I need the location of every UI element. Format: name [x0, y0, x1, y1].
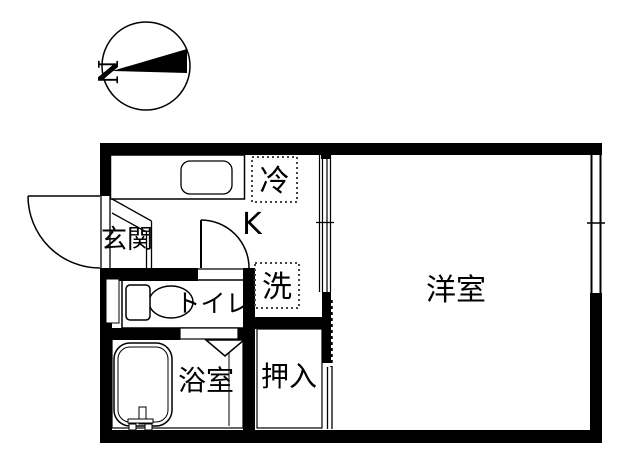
bathtub-icon	[114, 343, 172, 430]
room-label-genkan: 玄関	[101, 225, 153, 255]
label-laundry: 洗	[262, 270, 292, 305]
room-label-bath: 浴室	[178, 364, 234, 397]
compass-north-label: N	[91, 60, 122, 85]
floor-plan: N	[0, 0, 633, 458]
room-label-toilet: トイレ	[175, 289, 250, 318]
bath-door	[180, 328, 238, 339]
room-label-western-room: 洋室	[426, 273, 486, 308]
wall-right-lower	[590, 293, 602, 443]
bath-faucet-knob	[129, 424, 136, 430]
kitchen-sink-icon	[181, 161, 232, 194]
wall-bottom	[100, 430, 602, 443]
room-label-closet: 押入	[261, 360, 317, 393]
wall-toilet-bottom	[112, 328, 180, 340]
bath-faucet-knob	[145, 424, 152, 430]
floor-plan-canvas: N	[0, 0, 633, 458]
wall-closet-top	[250, 317, 322, 329]
toilet-window-slot	[106, 279, 119, 323]
entrance-door-arc-icon	[28, 196, 100, 268]
entrance-door	[28, 196, 110, 268]
wall-toilet-top	[112, 268, 198, 281]
west-room-window	[587, 155, 605, 293]
label-fridge: 冷	[260, 164, 290, 199]
compass: N	[91, 22, 190, 110]
wall-top	[100, 143, 602, 155]
bath-faucet-bar	[128, 419, 153, 423]
wall-closet-east	[322, 292, 331, 363]
kitchen-room-sliding-door	[316, 155, 334, 292]
toilet-tank-icon	[126, 285, 150, 320]
room-label-kitchen: K	[242, 207, 263, 242]
wall-toilet-bottom-stub	[238, 328, 243, 340]
genkan-step-line	[112, 199, 152, 221]
compass-needle-icon	[112, 49, 187, 73]
